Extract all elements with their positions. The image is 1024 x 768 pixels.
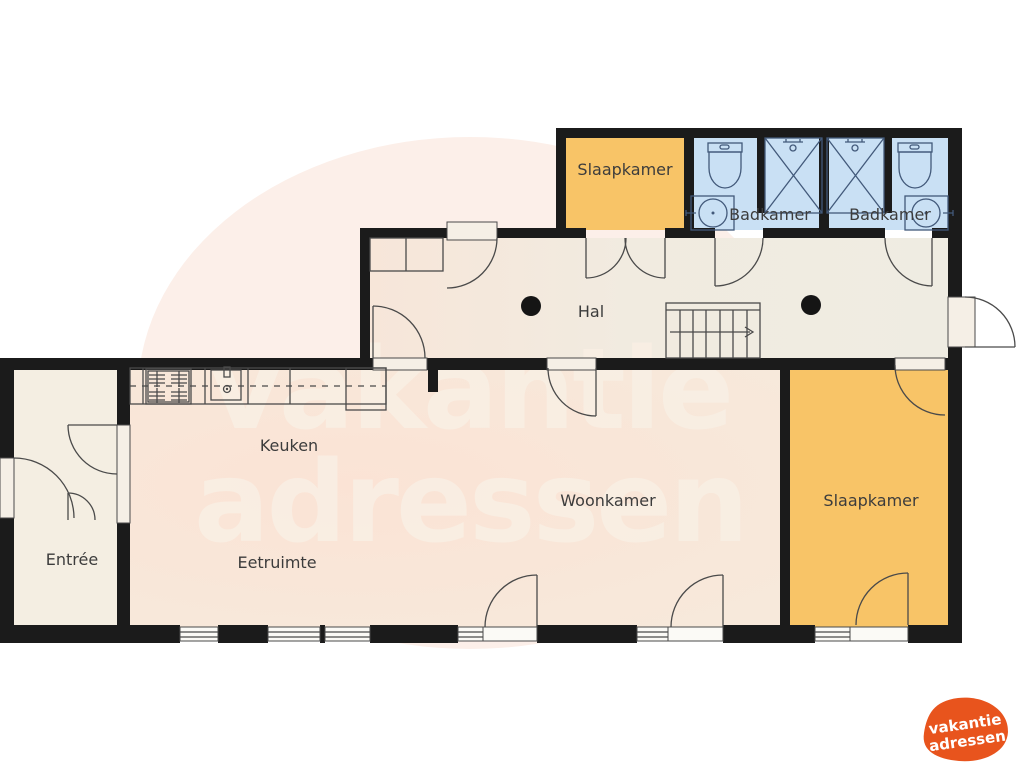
brand-logo: vakantie adressen bbox=[924, 698, 1008, 762]
wall-hal-west bbox=[360, 228, 370, 368]
wall-south-h bbox=[908, 625, 962, 643]
wall-south-a bbox=[0, 625, 180, 643]
wall-entry-b bbox=[117, 523, 130, 627]
label-hall: Hal bbox=[578, 302, 604, 321]
backdoor-sill bbox=[447, 222, 497, 240]
wall-stub bbox=[428, 358, 438, 392]
door-opening-bedroom-right bbox=[850, 627, 908, 641]
window-living-1 bbox=[458, 627, 483, 641]
wall-west-a bbox=[0, 358, 14, 458]
wall-mid-b bbox=[427, 358, 547, 370]
label-bedroom-top: Slaapkamer bbox=[577, 160, 673, 179]
bedroom-door-sill bbox=[895, 358, 945, 370]
wall-south-b bbox=[218, 625, 268, 643]
wall-hal-north-d bbox=[763, 228, 885, 238]
frontdoor-sill bbox=[948, 297, 975, 347]
floorplan-page: vakantie adressen bbox=[0, 0, 1024, 768]
window-kitchen-1 bbox=[180, 627, 218, 641]
wall-top-north bbox=[556, 128, 962, 138]
entry-floor bbox=[14, 368, 117, 627]
column-icon bbox=[521, 296, 541, 316]
label-entry: Entrée bbox=[46, 550, 98, 569]
wall-entry-a bbox=[117, 368, 130, 425]
floorplan-canvas: vakantie adressen bbox=[0, 0, 1024, 768]
wall-bedroomtop-west bbox=[556, 128, 566, 238]
door-opening-living-2 bbox=[668, 627, 723, 641]
living-door-sill bbox=[547, 358, 596, 370]
label-bathroom-left: Badkamer bbox=[729, 205, 811, 224]
label-bathroom-right: Badkamer bbox=[849, 205, 931, 224]
window-bedroom-right bbox=[815, 627, 850, 641]
wall-east-lower bbox=[948, 347, 962, 643]
bedroom-top-floor bbox=[566, 138, 684, 230]
entry-ext-door-sill bbox=[0, 458, 14, 518]
watermark-line2: adressen bbox=[194, 438, 746, 568]
column-icon bbox=[801, 295, 821, 315]
window-dining-1 bbox=[268, 627, 320, 641]
label-bedroom-right: Slaapkamer bbox=[823, 491, 919, 510]
wall-south-f bbox=[723, 625, 815, 643]
label-living: Woonkamer bbox=[560, 491, 656, 510]
wall-south-e bbox=[537, 625, 637, 643]
wall-mid-d bbox=[945, 358, 962, 370]
door-opening-living-1 bbox=[483, 627, 537, 641]
wall-shower2 bbox=[884, 138, 892, 213]
wall-hal-north-b bbox=[497, 228, 586, 238]
label-kitchen: Keuken bbox=[260, 436, 318, 455]
wall-hal-north-a bbox=[360, 228, 447, 238]
wall-mid-c bbox=[596, 358, 895, 370]
wall-shower1 bbox=[757, 138, 765, 213]
label-dining: Eetruimte bbox=[237, 553, 316, 572]
entry-opening-sill bbox=[117, 425, 130, 523]
window-living-2 bbox=[637, 627, 668, 641]
wall-bedroomright-west bbox=[780, 358, 790, 627]
window-dining-2 bbox=[325, 627, 370, 641]
wall-bedroomtop-bath1 bbox=[684, 128, 694, 238]
wall-south-d bbox=[370, 625, 458, 643]
wall-south-c bbox=[320, 625, 325, 643]
wall-west-b bbox=[0, 518, 14, 643]
